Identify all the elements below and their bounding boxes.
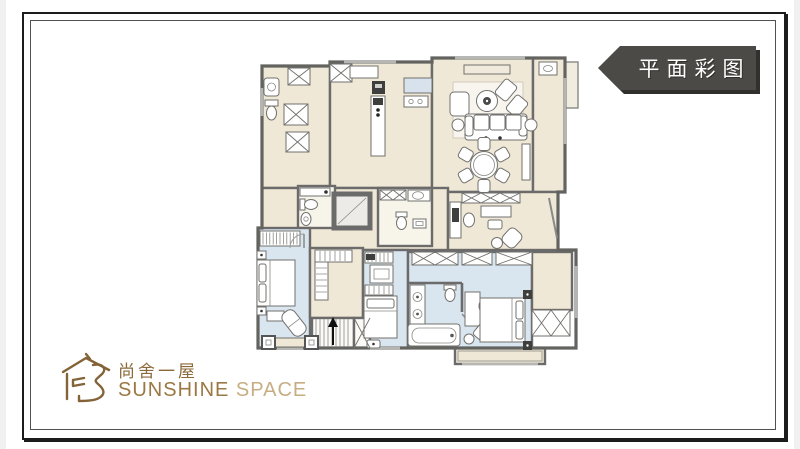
- side-table-icon: [525, 119, 537, 131]
- logo: [56, 352, 116, 415]
- logo-en-first: SUNSHINE: [118, 379, 236, 401]
- logo-en-second: SPACE: [236, 379, 307, 401]
- room-balcony-bottom: [455, 348, 545, 364]
- monitor-icon: [452, 208, 459, 222]
- bidet-icon: [413, 219, 426, 228]
- room-entry-strip: [532, 252, 572, 310]
- right-edge-strip: [794, 0, 800, 449]
- left-edge-strip: [0, 0, 6, 449]
- counter-icon: [404, 78, 432, 93]
- sink-icon: [264, 78, 279, 96]
- stool-icon: [464, 334, 474, 344]
- dresser-icon: [370, 265, 393, 283]
- stove-icon: [373, 98, 383, 105]
- ac-platform: [565, 62, 578, 108]
- ottoman-icon: [492, 238, 503, 249]
- pillow-icon: [259, 264, 266, 282]
- table-icon: [481, 206, 511, 217]
- dining-table-icon: [471, 152, 498, 179]
- bench-icon: [275, 338, 305, 347]
- tv-cabinet-icon: [464, 65, 510, 74]
- sunshine-space-house-icon: [56, 352, 116, 410]
- page: 平面彩图: [0, 0, 800, 449]
- wardrobe-icon: [315, 250, 352, 262]
- kitchen-sink-icon: [404, 96, 428, 107]
- dining-chair-icon: [478, 138, 490, 151]
- bench-icon: [267, 311, 284, 321]
- banner-label: 平面彩图: [622, 50, 760, 90]
- column-icon: [305, 336, 318, 349]
- cabinet-icon: [380, 190, 406, 200]
- closet-icon: [412, 252, 458, 265]
- makeup-desk-icon: [465, 292, 480, 326]
- fridge-handle: [375, 84, 382, 88]
- pillow-icon: [516, 321, 523, 339]
- logo-english-name: SUNSHINE SPACE: [118, 379, 307, 402]
- console-icon: [522, 144, 530, 180]
- room-side-strip: [533, 58, 565, 192]
- dining-chair-icon: [478, 180, 490, 193]
- floor-plan: [250, 52, 582, 368]
- pillow-icon: [259, 284, 266, 302]
- pillow-icon: [367, 299, 394, 308]
- pillow-icon: [516, 301, 523, 319]
- side-table-icon: [452, 119, 464, 131]
- closet-icon: [532, 310, 570, 336]
- pedestal-sink-icon: [301, 213, 311, 226]
- side-strip-fixtures: [539, 62, 557, 75]
- armchair-icon: [450, 92, 469, 116]
- toilet-icon: [265, 100, 278, 106]
- column-icon: [262, 336, 275, 349]
- chair-icon: [488, 220, 502, 229]
- sink-icon: [539, 62, 557, 75]
- counter-icon: [350, 66, 378, 78]
- desk-chair-icon: [464, 213, 475, 227]
